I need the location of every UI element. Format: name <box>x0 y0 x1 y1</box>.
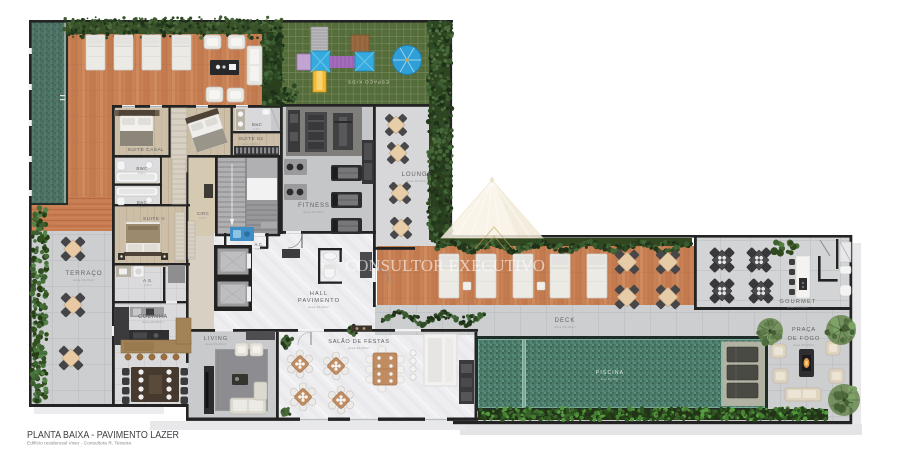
svg-text:TERRAÇO: TERRAÇO <box>65 270 102 277</box>
svg-text:CIRC: CIRC <box>197 211 209 216</box>
svg-text:área 00,00m²: área 00,00m² <box>601 378 619 381</box>
svg-text:PAVIMENTO: PAVIMENTO <box>298 298 340 304</box>
svg-text:PISCINA: PISCINA <box>596 370 624 376</box>
svg-text:PRAÇA: PRAÇA <box>792 327 816 333</box>
svg-text:0,0m²: 0,0m² <box>255 248 263 251</box>
svg-text:área 00,00m²: área 00,00m² <box>73 278 94 282</box>
svg-text:FITNESS: FITNESS <box>298 203 330 209</box>
svg-text:0,0m²: 0,0m² <box>253 128 261 131</box>
svg-text:Edifício residencial Viver -: Edifício residencial Viver - Consultora … <box>27 441 132 446</box>
svg-text:A.C.: A.C. <box>255 242 264 247</box>
svg-text:PLANTA BAIXA - PAVIMENTO LAZER: PLANTA BAIXA - PAVIMENTO LAZER <box>27 430 179 441</box>
svg-text:SALÃO DE FESTAS: SALÃO DE FESTAS <box>328 338 389 345</box>
svg-text:área 00,00m²: área 00,00m² <box>787 305 808 309</box>
svg-text:DE FOGO: DE FOGO <box>788 336 820 342</box>
svg-text:A.S.: A.S. <box>143 278 153 283</box>
svg-text:0,0m²: 0,0m² <box>199 217 207 220</box>
svg-text:BwC: BwC <box>137 200 147 205</box>
svg-text:BWC: BWC <box>136 166 147 171</box>
svg-text:SUITE II: SUITE II <box>143 216 165 222</box>
svg-text:área 00,00m²: área 00,00m² <box>348 346 369 350</box>
svg-text:CONSULTOR EXECUTIVO: CONSULTOR EXECUTIVO <box>345 256 545 275</box>
svg-text:área 00,00m²: área 00,00m² <box>303 210 324 214</box>
svg-text:DECK: DECK <box>555 318 576 324</box>
svg-text:área 00,00m²: área 00,00m² <box>554 325 575 329</box>
svg-text:área 00,00m²: área 00,00m² <box>205 342 226 346</box>
svg-text:área 00,00m²: área 00,00m² <box>308 305 329 309</box>
svg-text:BwC: BwC <box>252 122 262 127</box>
svg-text:ESPAÇO KIDS: ESPAÇO KIDS <box>347 80 389 85</box>
svg-text:SUITE CASAL: SUITE CASAL <box>128 147 165 153</box>
svg-text:área 00,00m²: área 00,00m² <box>142 320 163 324</box>
svg-text:área 00,00m²: área 00,00m² <box>406 179 427 183</box>
svg-text:HALL: HALL <box>310 291 329 297</box>
svg-text:SUITE 02: SUITE 02 <box>239 136 264 142</box>
svg-text:0,0m²: 0,0m² <box>138 206 146 209</box>
svg-text:LOUNGE: LOUNGE <box>402 172 433 178</box>
svg-text:0,0m²: 0,0m² <box>144 284 152 287</box>
svg-text:área 0,00m²: área 0,00m² <box>242 142 259 146</box>
svg-text:0,0m²: 0,0m² <box>138 172 146 175</box>
svg-text:área 00,00m²: área 00,00m² <box>793 343 814 347</box>
